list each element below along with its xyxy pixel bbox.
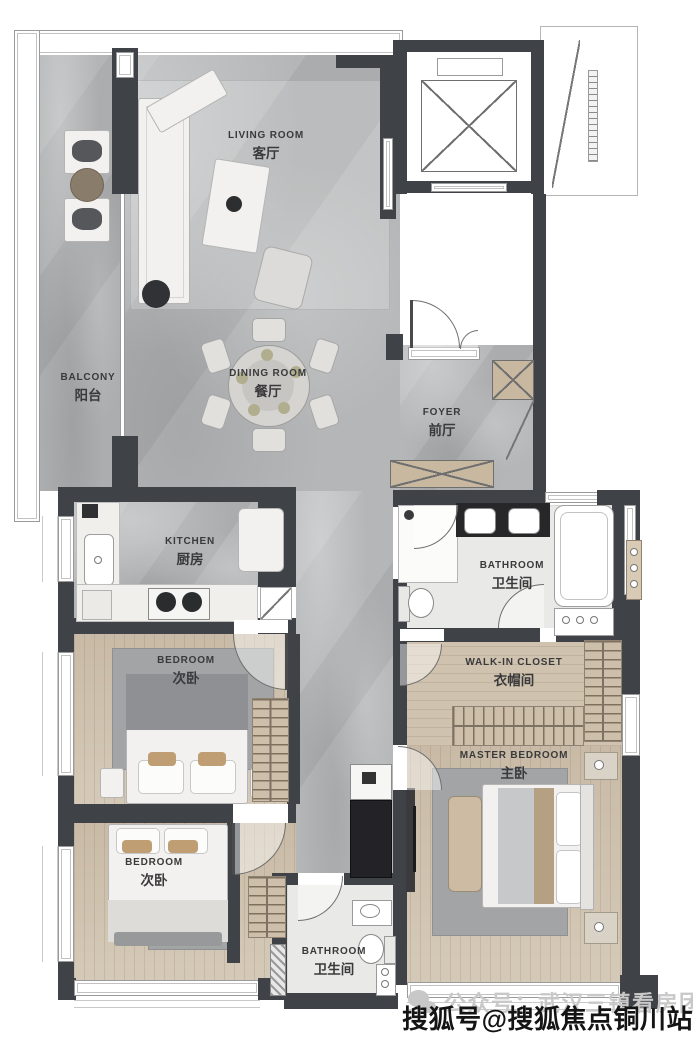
kitchen-door-leaf — [260, 587, 292, 620]
balcony-table — [70, 168, 104, 202]
doorway — [233, 806, 288, 821]
wardrobe-rack — [248, 876, 286, 938]
panel-dial — [381, 980, 389, 988]
room-label-bathroom-main: BATHROOM 卫生间 — [480, 560, 545, 592]
window-sill — [74, 1000, 260, 1008]
sink-basin — [360, 904, 380, 918]
bed-runner — [534, 788, 554, 904]
window — [383, 138, 393, 210]
window — [545, 492, 601, 503]
appliance — [270, 944, 286, 996]
elevator-wall — [393, 40, 544, 52]
window — [622, 694, 640, 756]
sink — [464, 508, 496, 534]
elevator-door — [431, 183, 507, 192]
burner — [156, 592, 176, 612]
accent-pillow — [148, 752, 176, 766]
entry-door-swing-small — [460, 330, 478, 349]
room-label-dining: DINING ROOM 餐厅 — [229, 368, 307, 400]
panel-dial — [381, 968, 389, 976]
burner — [182, 592, 202, 612]
wall — [112, 436, 138, 492]
washer-dial — [590, 616, 598, 624]
place-setting — [248, 404, 260, 416]
wall — [533, 194, 546, 493]
balcony-slider — [120, 190, 125, 440]
window-sill — [42, 652, 58, 776]
window-sill — [42, 516, 58, 582]
washer-dial — [576, 616, 584, 624]
equipment-dial — [630, 564, 638, 572]
elevator-wall — [393, 40, 407, 194]
side-table — [142, 280, 170, 308]
equipment-dial — [630, 580, 638, 588]
wall — [386, 334, 403, 360]
bed-bench — [448, 796, 482, 892]
wall — [288, 618, 296, 634]
window — [74, 980, 260, 996]
room-label-balcony: BALCONY 阳台 — [60, 372, 115, 404]
door-leaf — [506, 400, 534, 460]
elevator-counterweight — [437, 58, 503, 76]
toilet — [408, 588, 434, 618]
wall — [288, 804, 296, 823]
lamp — [594, 922, 604, 932]
washer-dial — [562, 616, 570, 624]
headboard — [580, 784, 594, 910]
room-label-living: LIVING ROOM 客厅 — [228, 130, 304, 162]
window — [116, 52, 134, 78]
accent-pillow — [198, 752, 226, 766]
room-label-bathroom-small: BATHROOM 卫生间 — [302, 946, 367, 978]
sink — [508, 508, 540, 534]
watermark-sohu: 搜狐号@搜狐焦点铜川站 — [402, 999, 693, 1036]
wall — [58, 804, 233, 823]
window — [58, 652, 74, 776]
pillow — [556, 850, 582, 904]
wall — [287, 873, 298, 885]
window-sill — [42, 846, 58, 962]
closet-rack — [452, 706, 584, 746]
floor-plan: LIVING ROOM 客厅 BALCONY 阳台 DINING ROOM 餐厅… — [0, 0, 693, 1037]
window — [58, 846, 74, 962]
tv — [413, 806, 416, 872]
wardrobe-rack — [252, 698, 289, 802]
wall — [58, 487, 260, 502]
shower-head — [404, 510, 414, 520]
shoe-cabinet — [492, 360, 534, 400]
bed-blanket — [498, 788, 534, 904]
window — [58, 516, 74, 582]
wall-right-perimeter — [622, 638, 640, 985]
nightstand — [100, 768, 124, 798]
lamp — [594, 760, 604, 770]
chair-cushion — [72, 140, 102, 162]
doorway — [234, 620, 288, 633]
base-cabinet — [82, 590, 112, 620]
window-frame-left — [14, 30, 40, 522]
room-label-foyer: FOYER 前厅 — [423, 407, 461, 439]
dining-chair — [252, 318, 286, 342]
closet-rack — [584, 640, 622, 742]
fridge — [238, 508, 284, 572]
elevator-shaft — [421, 80, 517, 172]
toilet-tank — [384, 936, 396, 964]
door-leaf — [285, 634, 288, 690]
window-frame-top — [28, 30, 403, 56]
entry-door-swing — [412, 300, 460, 348]
dining-chair — [252, 428, 286, 452]
doorway — [400, 629, 444, 641]
hall-cabinet-detail — [362, 772, 376, 784]
room-label-walk-in-closet: WALK-IN CLOSET 衣帽间 — [465, 657, 562, 689]
stair-ladder — [588, 70, 598, 162]
stair-door-leaf — [552, 40, 580, 188]
equipment-dial — [630, 548, 638, 556]
entry-door-leaf — [410, 300, 413, 348]
bed-bench — [114, 932, 222, 946]
decor-bowl — [226, 196, 242, 212]
room-label-bedroom-upper: BEDROOM 次卧 — [157, 655, 215, 687]
room-label-kitchen: KITCHEN 厨房 — [165, 536, 215, 568]
place-setting — [261, 349, 273, 361]
bathtub-basin — [560, 512, 608, 600]
small-appliance — [82, 504, 98, 518]
elevator-wall — [531, 40, 544, 194]
room-label-master-bedroom: MASTER BEDROOM 主卧 — [460, 750, 568, 782]
floor-balcony — [40, 55, 122, 491]
hall-niche — [350, 800, 392, 878]
room-label-bedroom-lower: BEDROOM 次卧 — [125, 857, 183, 889]
accent-pillow — [122, 840, 152, 853]
pillow — [556, 792, 582, 846]
sofa-seatline — [146, 106, 184, 298]
door-leaf — [232, 823, 235, 875]
chair-cushion — [72, 208, 102, 230]
foyer-bench — [390, 460, 494, 488]
faucet — [94, 556, 102, 564]
accent-pillow — [168, 840, 198, 853]
place-setting — [278, 402, 290, 414]
